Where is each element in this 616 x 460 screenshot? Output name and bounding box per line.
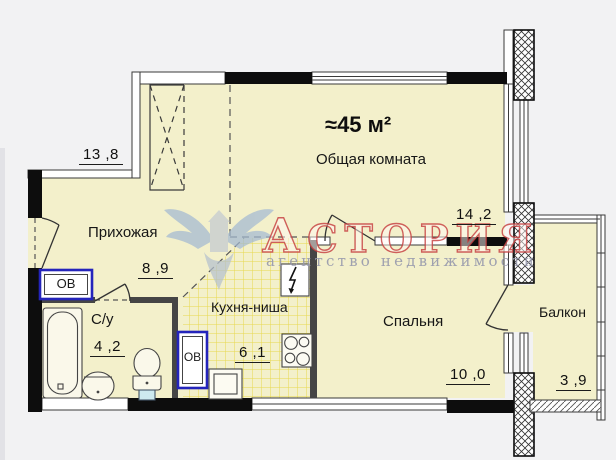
room-label-bathroom: С/у [91,311,114,328]
dim-label-10-0: 10 ,0 [446,366,490,385]
room-label-kitchen: Кухня-ниша [211,299,288,315]
watermark-tagline: агентство недвижимости [266,252,537,270]
floor-plan: АСТОРИЯ агентство недвижимости ≈45 м² Об… [0,0,616,460]
balcony-parapet [530,400,601,412]
kitchen-sink [209,369,242,399]
dim-label-3-9: 3 ,9 [556,372,591,391]
heating-label-hall: ОВ [40,276,92,291]
heating-label-kitchen: ОВ [178,350,207,364]
stove [282,334,312,367]
dim-label-14-2: 14 ,2 [452,206,496,225]
room-label-hallway: Прихожая [88,224,158,241]
room-label-bedroom: Спальня [383,313,443,330]
room-label-common: Общая комната [316,151,426,168]
room-label-balcony: Балкон [539,304,586,320]
dim-label-6-1: 6 ,1 [235,344,270,363]
dim-label-4-2: 4 ,2 [90,338,125,357]
bathroom-sink [82,372,114,400]
dim-label-8-9: 8 ,9 [138,260,173,279]
dim-label-13-8: 13 ,8 [79,146,123,165]
total-area-label: ≈45 м² [325,112,391,138]
page-edge-shade [0,148,5,460]
bathtub [43,308,82,398]
